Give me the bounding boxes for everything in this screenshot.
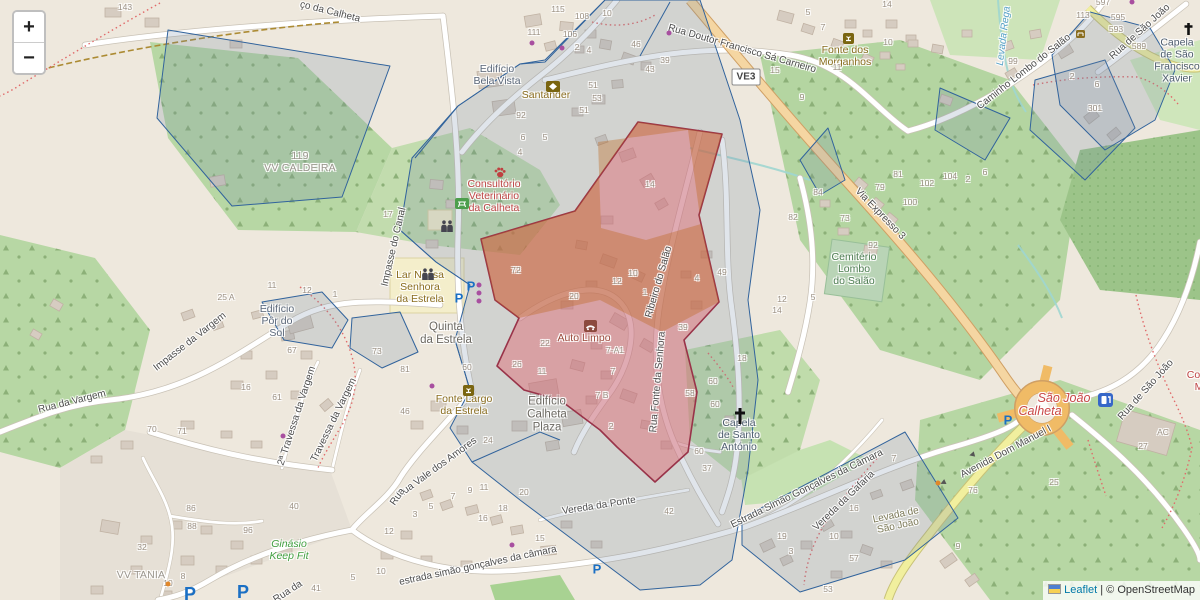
map-viewport[interactable]: ço da CalhetaRua Doutor Francisco Sá Car… <box>0 0 1200 600</box>
attribution-separator: | <box>1100 584 1103 596</box>
zoom-out-button[interactable]: − <box>14 43 44 73</box>
leaflet-link[interactable]: Leaflet <box>1064 584 1097 596</box>
zoom-in-button[interactable]: + <box>14 12 44 43</box>
map-tiles-layer <box>0 0 1200 600</box>
ukraine-flag-icon <box>1048 584 1061 594</box>
attribution-bar: Leaflet | © OpenStreetMap <box>1043 581 1200 600</box>
osm-credit[interactable]: © OpenStreetMap <box>1106 584 1195 596</box>
zoom-control: + − <box>12 10 46 75</box>
